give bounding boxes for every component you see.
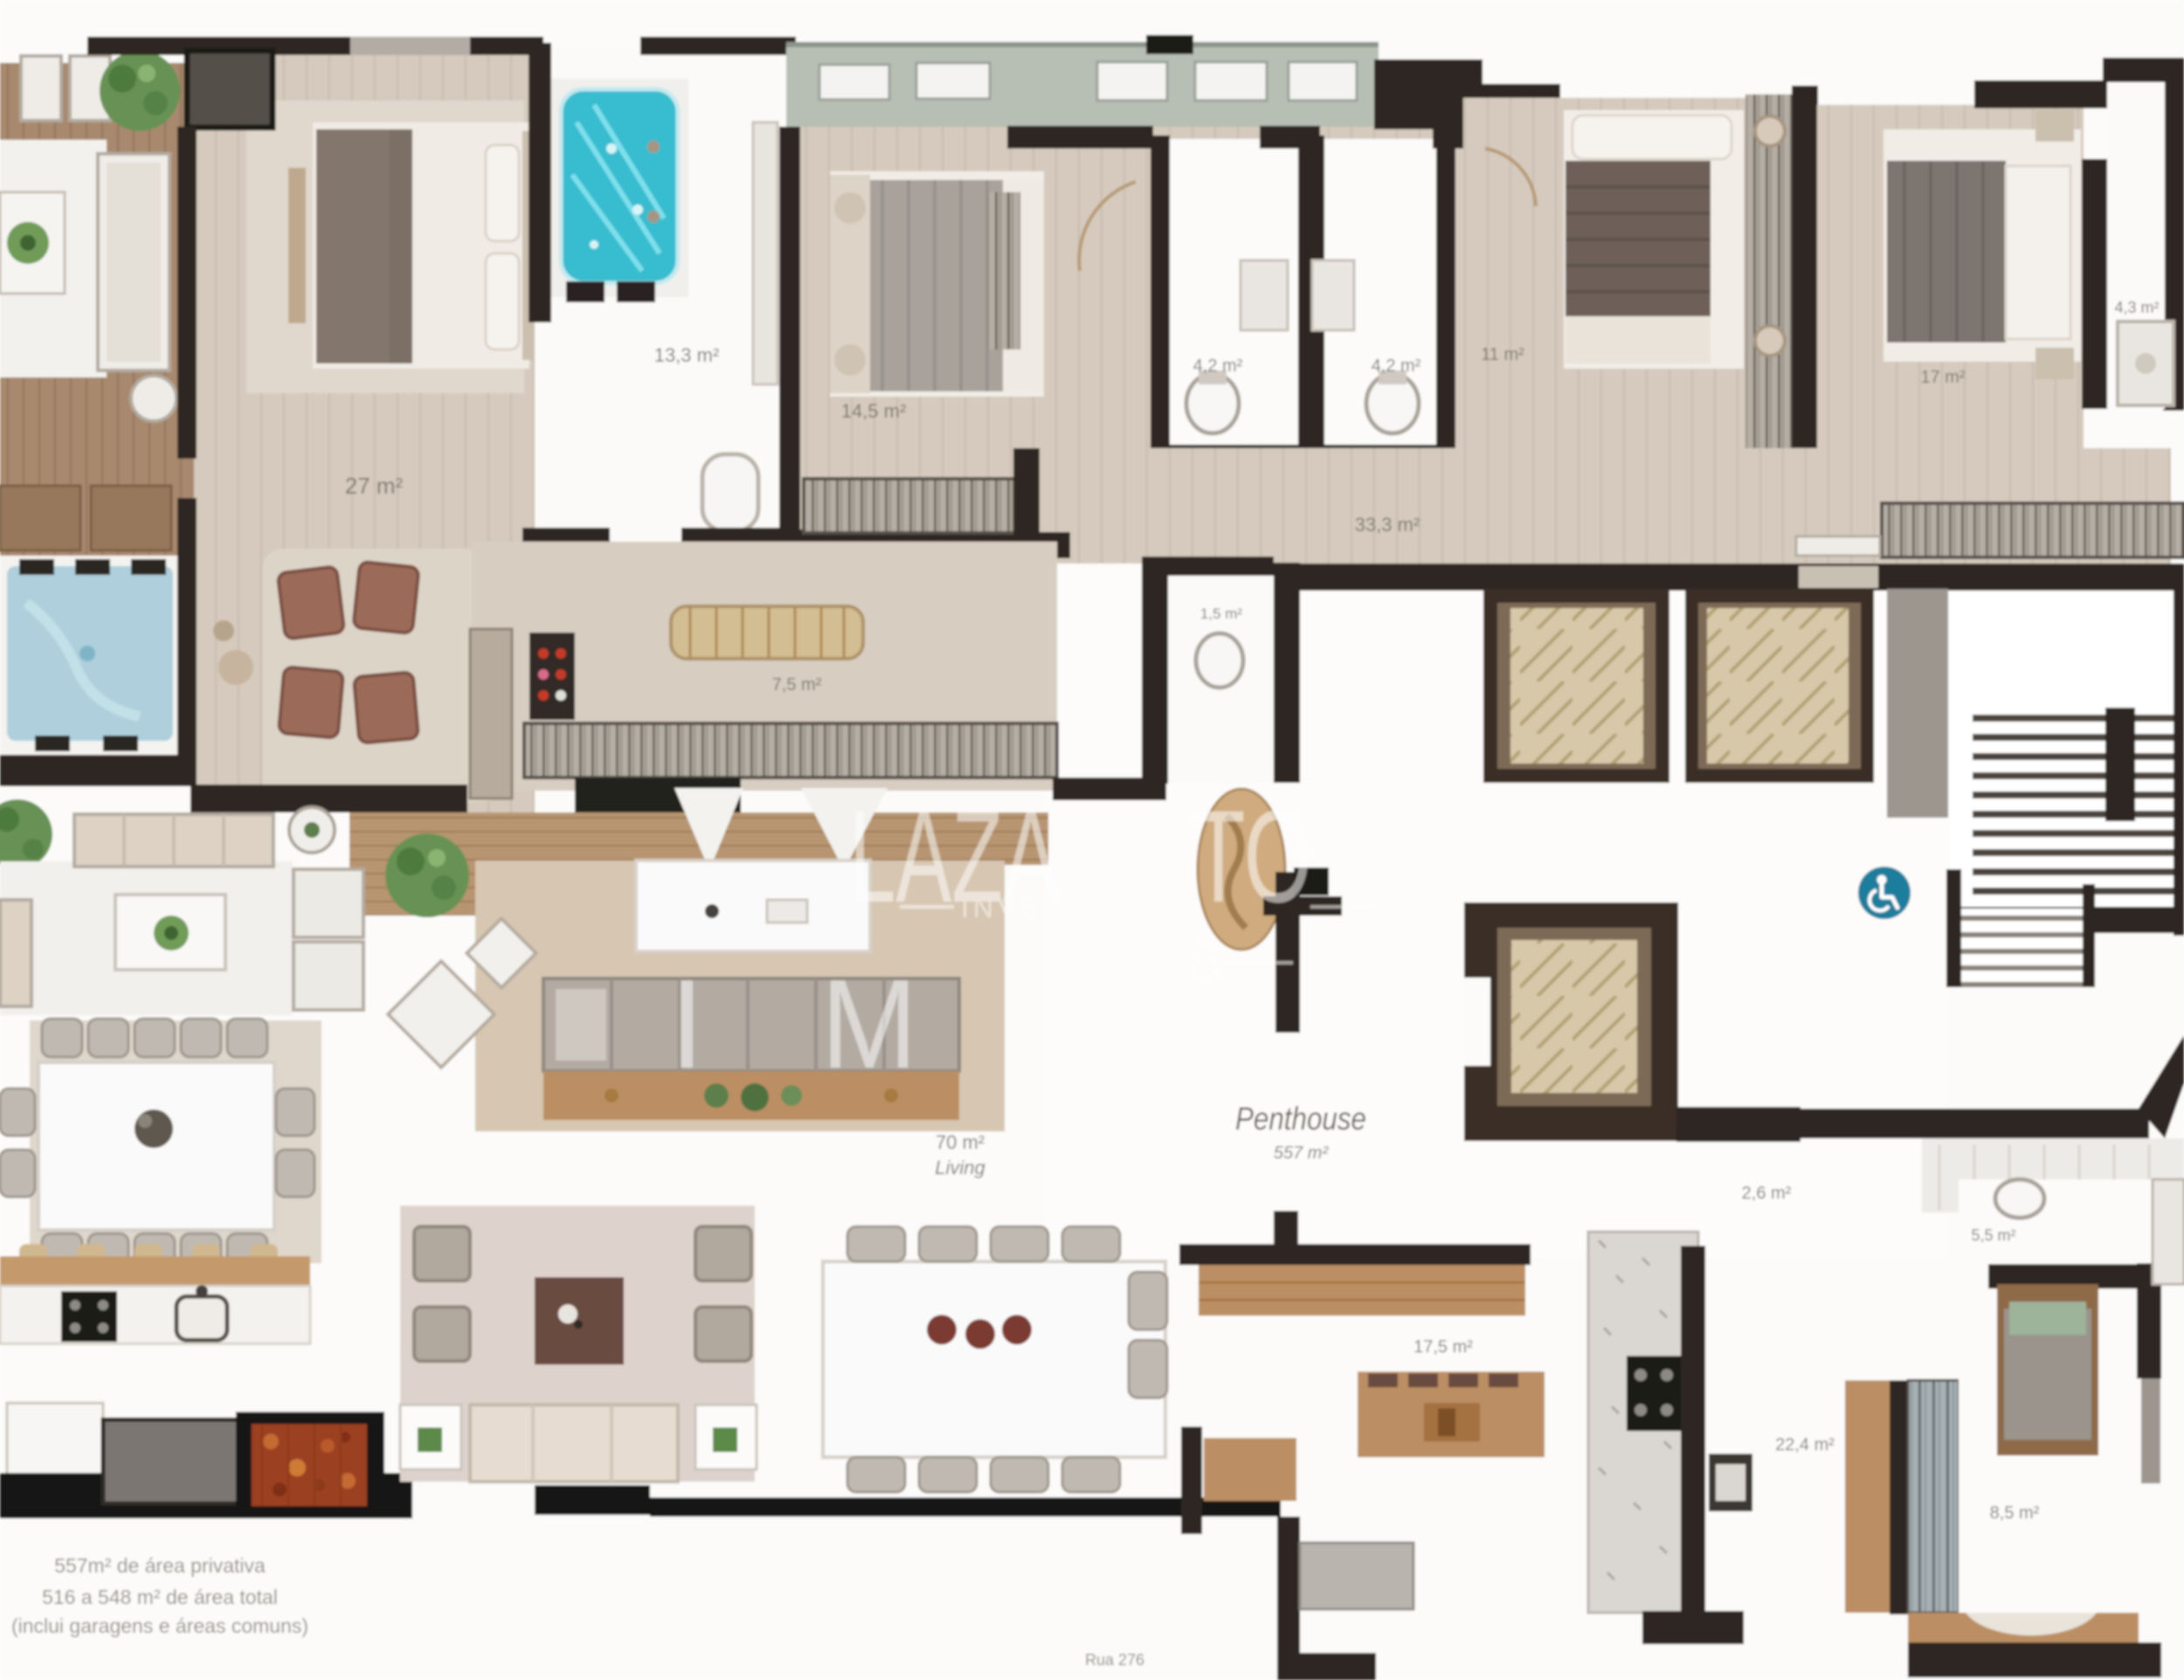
svg-text:Living: Living: [935, 1157, 985, 1179]
svg-text:557 m²: 557 m²: [1274, 1144, 1330, 1163]
svg-text:4,2 m²: 4,2 m²: [1372, 356, 1421, 376]
svg-text:2,6 m²: 2,6 m²: [1742, 1184, 1792, 1203]
svg-text:17 m²: 17 m²: [1920, 368, 1965, 387]
svg-text:7,5 m²: 7,5 m²: [772, 675, 822, 695]
svg-text:S: S: [1186, 931, 1221, 990]
svg-text:557m² de área privativa: 557m² de área privativa: [54, 1554, 266, 1577]
svg-text:5,5 m²: 5,5 m²: [1971, 1227, 2015, 1244]
svg-text:I: I: [669, 953, 704, 1095]
svg-text:INVE: INVE: [961, 892, 1044, 923]
svg-text:11 m²: 11 m²: [1481, 345, 1524, 364]
svg-text:TO: TO: [1192, 783, 1312, 930]
svg-text:8,5 m²: 8,5 m²: [1990, 1504, 2040, 1523]
svg-text:516 a 548 m² de área total: 516 a 548 m² de área total: [42, 1586, 278, 1608]
svg-text:M: M: [821, 953, 917, 1095]
svg-text:4,3 m²: 4,3 m²: [2114, 299, 2159, 316]
svg-text:70 m²: 70 m²: [936, 1131, 985, 1153]
svg-text:Rua 276: Rua 276: [1085, 1651, 1144, 1669]
svg-text:33,3 m²: 33,3 m²: [1355, 514, 1420, 536]
svg-text:Penthouse: Penthouse: [1235, 1101, 1366, 1137]
svg-text:27 m²: 27 m²: [345, 473, 404, 499]
svg-text:14,5 m²: 14,5 m²: [841, 400, 907, 422]
svg-text:13,3 m²: 13,3 m²: [654, 344, 720, 366]
svg-text:4,2 m²: 4,2 m²: [1193, 356, 1243, 376]
svg-text:17,5 m²: 17,5 m²: [1413, 1338, 1473, 1357]
svg-text:22,4 m²: 22,4 m²: [1775, 1435, 1835, 1455]
svg-text:(inclui garagens e áreas comun: (inclui garagens e áreas comuns): [11, 1614, 308, 1637]
svg-text:1,5 m²: 1,5 m²: [1200, 605, 1243, 622]
